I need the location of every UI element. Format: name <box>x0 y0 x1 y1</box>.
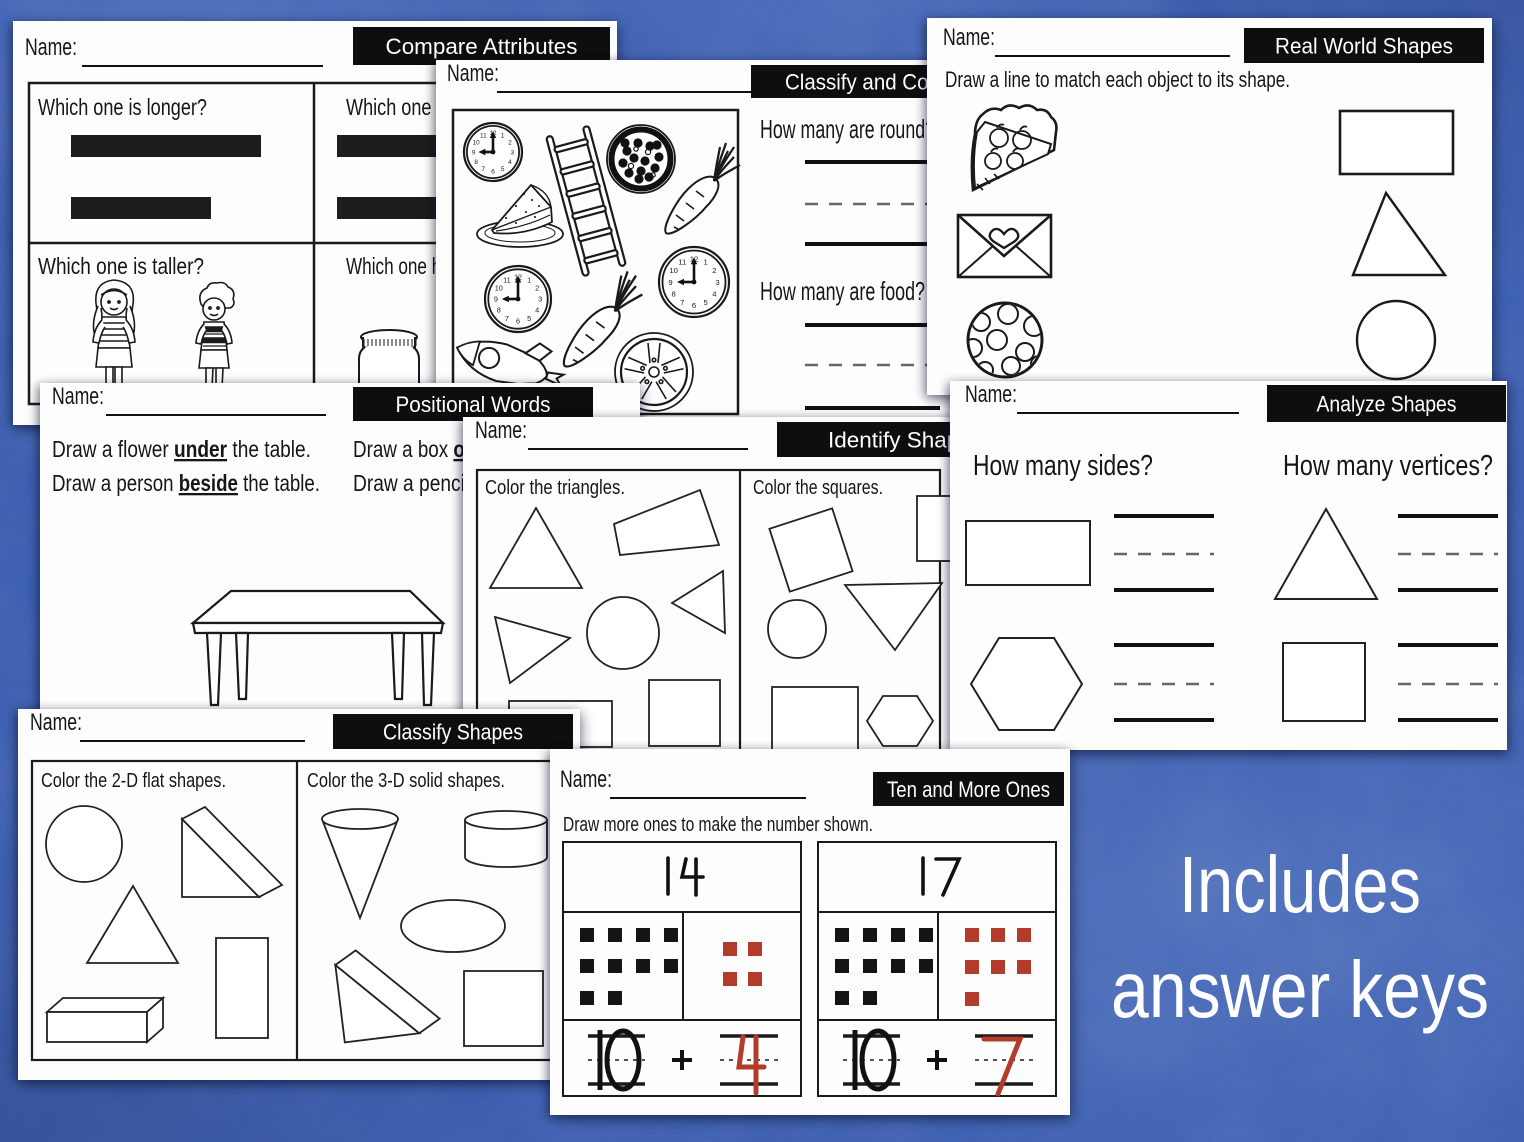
svg-text:7: 7 <box>680 298 684 307</box>
svg-text:6: 6 <box>491 169 495 176</box>
svg-text:Name:: Name: <box>52 383 104 410</box>
svg-text:7: 7 <box>482 166 486 173</box>
svg-text:4: 4 <box>508 159 512 166</box>
svg-text:Name:: Name: <box>943 24 995 51</box>
svg-text:3: 3 <box>511 149 515 156</box>
svg-text:How many are food?: How many are food? <box>760 276 925 306</box>
svg-text:Name:: Name: <box>475 417 527 444</box>
svg-text:Color the triangles.: Color the triangles. <box>485 477 625 499</box>
svg-text:8: 8 <box>671 290 675 299</box>
svg-text:2: 2 <box>508 140 512 147</box>
svg-text:Includes: Includes <box>1179 840 1421 929</box>
svg-text:How many are round?: How many are round? <box>760 114 935 144</box>
svg-text:3: 3 <box>715 278 719 287</box>
svg-text:10: 10 <box>495 284 503 293</box>
svg-text:Compare Attributes: Compare Attributes <box>386 34 578 59</box>
svg-text:9: 9 <box>668 278 672 287</box>
svg-text:5: 5 <box>527 314 531 323</box>
svg-text:Analyze Shapes: Analyze Shapes <box>1317 391 1457 416</box>
svg-text:1: 1 <box>501 132 505 139</box>
svg-text:4: 4 <box>535 306 539 315</box>
svg-text:Classify Shapes: Classify Shapes <box>383 719 523 744</box>
svg-text:Color the 2-D flat shapes.: Color the 2-D flat shapes. <box>41 770 226 792</box>
svg-text:9: 9 <box>494 295 498 304</box>
svg-text:Which one is longer?: Which one is longer? <box>38 94 207 120</box>
svg-text:Name:: Name: <box>447 60 499 87</box>
svg-text:Which one is taller?: Which one is taller? <box>38 253 204 279</box>
svg-text:Color the 3-D solid shapes.: Color the 3-D solid shapes. <box>307 770 505 792</box>
svg-text:9: 9 <box>472 149 476 156</box>
svg-text:3: 3 <box>538 295 542 304</box>
svg-text:11: 11 <box>678 257 686 266</box>
svg-text:Name:: Name: <box>30 709 82 736</box>
svg-text:Color the squares.: Color the squares. <box>753 477 883 499</box>
svg-text:answer keys: answer keys <box>1111 945 1489 1034</box>
svg-text:Draw a line to match each obje: Draw a line to match each object to its … <box>945 67 1290 92</box>
svg-text:11: 11 <box>503 275 511 284</box>
svg-text:1: 1 <box>527 275 531 284</box>
svg-text:Ten and More Ones: Ten and More Ones <box>887 777 1050 802</box>
svg-text:6: 6 <box>516 317 520 326</box>
svg-text:10: 10 <box>473 140 481 147</box>
svg-text:How many vertices?: How many vertices? <box>1283 450 1493 482</box>
svg-text:Identify Shapes: Identify Shapes <box>828 427 963 452</box>
svg-text:8: 8 <box>474 159 478 166</box>
svg-text:Draw a person beside the table: Draw a person beside the table. <box>52 470 320 496</box>
svg-text:1: 1 <box>704 257 708 266</box>
svg-text:2: 2 <box>712 266 716 275</box>
svg-text:Draw a flower under the table.: Draw a flower under the table. <box>52 436 311 462</box>
svg-text:5: 5 <box>704 298 708 307</box>
svg-text:5: 5 <box>501 166 505 173</box>
svg-text:Real World Shapes: Real World Shapes <box>1275 33 1453 58</box>
svg-text:Name:: Name: <box>25 34 77 61</box>
svg-text:11: 11 <box>480 132 487 139</box>
svg-text:4: 4 <box>712 290 717 299</box>
svg-text:10: 10 <box>669 266 678 275</box>
svg-text:Positional Words: Positional Words <box>396 392 551 417</box>
svg-text:6: 6 <box>692 301 696 310</box>
svg-text:Name:: Name: <box>965 381 1017 408</box>
svg-text:Name:: Name: <box>560 766 612 793</box>
svg-text:Draw more ones to make the num: Draw more ones to make the number shown. <box>563 814 873 836</box>
svg-text:7: 7 <box>505 314 509 323</box>
svg-text:8: 8 <box>497 306 501 315</box>
svg-text:2: 2 <box>535 284 539 293</box>
svg-text:How many sides?: How many sides? <box>973 450 1153 482</box>
